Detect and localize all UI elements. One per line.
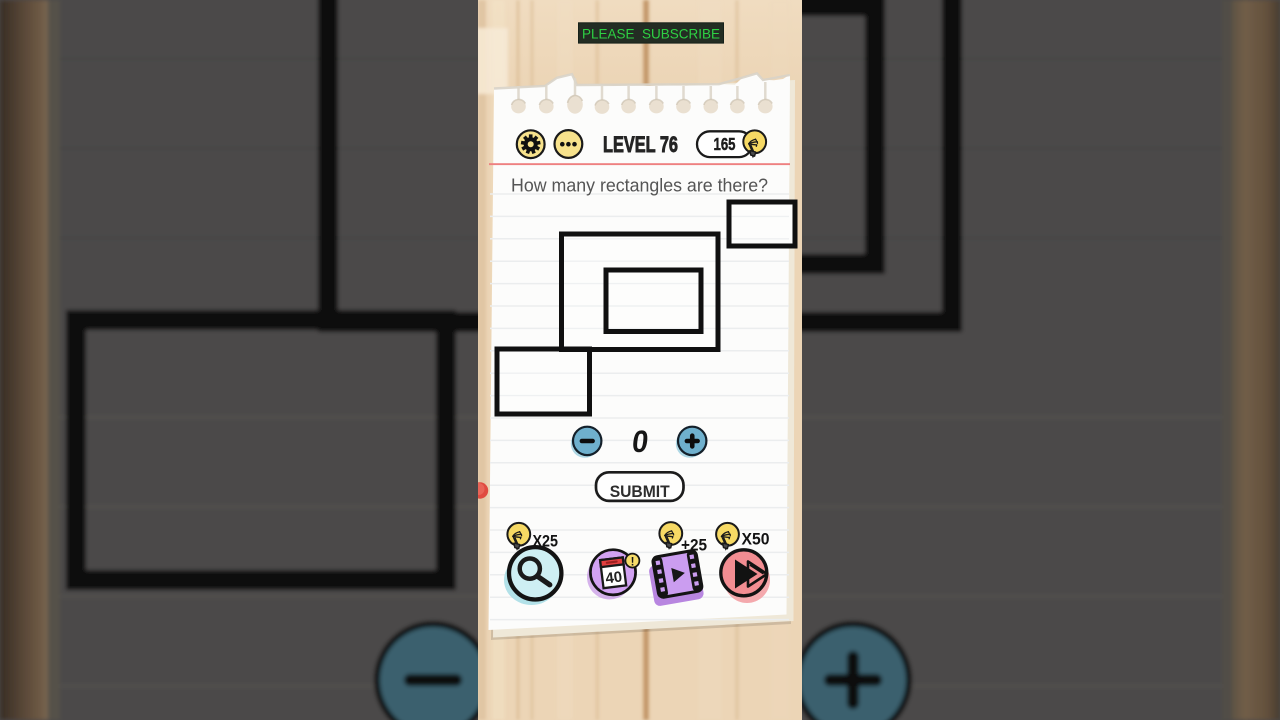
svg-text:!: ! [631, 556, 635, 568]
svg-text:165: 165 [714, 134, 736, 154]
svg-text:SUBMIT: SUBMIT [610, 483, 670, 501]
svg-text:X25: X25 [533, 532, 559, 551]
svg-text:How many rectangles are there?: How many rectangles are there? [511, 175, 768, 196]
svg-text:+25: +25 [681, 536, 707, 555]
svg-text:PLEASE SUBSCRIBE: PLEASE SUBSCRIBE [582, 26, 720, 42]
svg-text:LEVEL 76: LEVEL 76 [603, 132, 678, 157]
svg-text:40: 40 [605, 568, 624, 587]
svg-text:X50: X50 [742, 530, 770, 549]
